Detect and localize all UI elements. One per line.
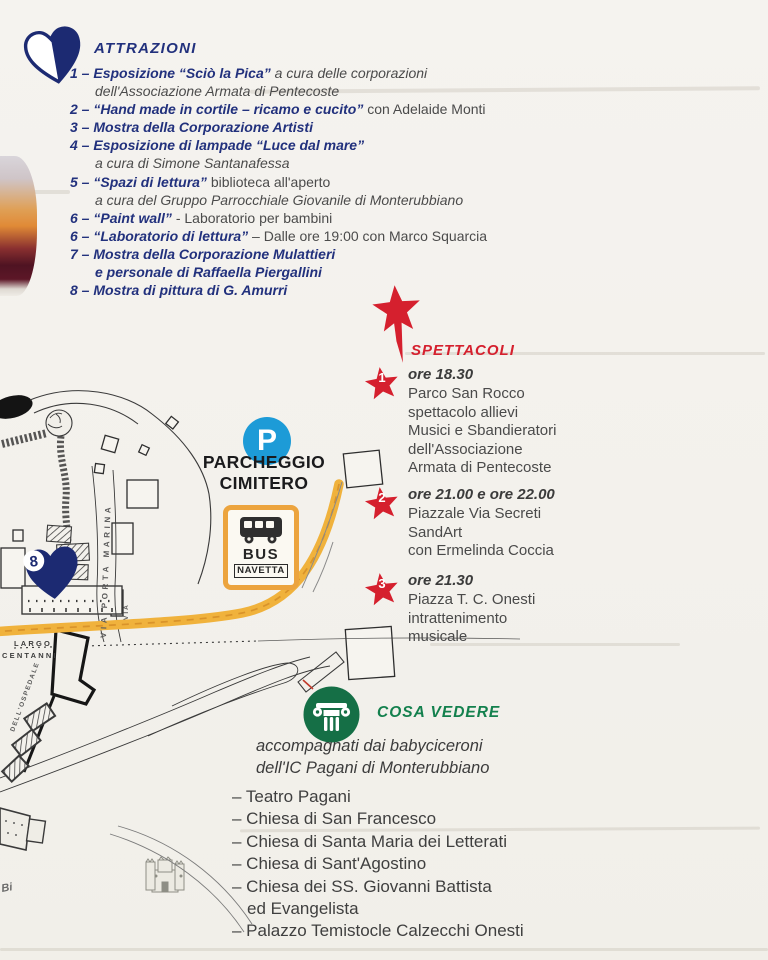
cosa-vedere-title: COSA VEDERE	[377, 704, 500, 722]
bus-sign-line2: NAVETTA	[234, 564, 288, 578]
star-marker-icon: 1	[364, 366, 400, 402]
map-pin-8: 8	[20, 541, 84, 605]
attraction-row: 2 – “Hand made in cortile – ricamo e cuc…	[70, 100, 590, 118]
map-label-largo: LARGO	[14, 639, 52, 648]
attraction-row: a cura del Gruppo Parrocchiale Giovanile…	[70, 191, 590, 209]
show-time: ore 18.30	[408, 366, 556, 383]
event-poster: ATTRAZIONI 1 – Esposizione “Sciò la Pica…	[0, 0, 768, 960]
show-item: 3 ore 21.30 Piazza T. C. Onesti intratte…	[364, 572, 535, 647]
pin-number: 8	[29, 553, 39, 571]
star-marker-icon: 2	[364, 486, 400, 522]
bus-shuttle-sign: BUS NAVETTA	[223, 505, 299, 590]
bus-sign-line1: BUS	[243, 547, 279, 562]
map-label-bi: Bi	[0, 881, 14, 895]
attraction-row: e personale di Raffaella Piergallini	[70, 263, 590, 281]
parking-label: PARCHEGGIO CIMITERO	[188, 452, 340, 494]
attraction-row: 3 – Mostra della Corporazione Artisti	[70, 118, 590, 136]
spettacoli-title: SPETTACOLI	[411, 342, 515, 359]
attraction-row: 6 – “Paint wall” - Laboratorio per bambi…	[70, 209, 590, 227]
wine-glass-photo	[0, 156, 37, 296]
attraction-row: dell'Associazione Armata di Pentecoste	[70, 82, 590, 100]
attractions-list: 1 – Esposizione “Sciò la Pica” a cura de…	[70, 64, 590, 299]
show-description: Piazza T. C. Onesti intrattenimento musi…	[408, 591, 535, 647]
place-item: – Chiesa di San Francesco	[232, 808, 524, 830]
attraction-row: 8 – Mostra di pittura di G. Amurri	[70, 281, 590, 299]
attraction-row: 5 – “Spazi di lettura” biblioteca all'ap…	[70, 173, 590, 191]
show-description: Parco San Rocco spettacolo allievi Music…	[408, 385, 556, 478]
bus-icon	[236, 513, 286, 547]
show-time: ore 21.00 e ore 22.00	[408, 486, 555, 503]
places-list: – Teatro Pagani – Chiesa di San Francesc…	[232, 786, 524, 943]
place-item: – Chiesa dei SS. Giovanni Battista	[232, 876, 524, 898]
star-marker-icon: 3	[364, 572, 400, 608]
attraction-row: 6 – “Laboratorio di lettura” – Dalle ore…	[70, 227, 590, 245]
map-label-via-porta-marina: VIA PORTA MARINA	[99, 504, 113, 638]
place-item: – Teatro Pagani	[232, 786, 524, 808]
place-item: – Palazzo Temistocle Calzecchi Onesti	[232, 920, 524, 942]
cosa-vedere-intro: accompagnati dai babyciceroni dell'IC Pa…	[256, 736, 489, 779]
attraction-row: 4 – Esposizione di lampade “Luce dal mar…	[70, 136, 590, 154]
place-item-continuation: ed Evangelista	[232, 898, 524, 920]
attraction-row: 1 – Esposizione “Sciò la Pica” a cura de…	[70, 64, 590, 82]
show-description: Piazzale Via Secreti SandArt con Ermelin…	[408, 505, 555, 561]
attraction-row: 7 – Mostra della Corporazione Mulattieri	[70, 245, 590, 263]
show-item: 2 ore 21.00 e ore 22.00 Piazzale Via Sec…	[364, 486, 555, 561]
show-item: 1 ore 18.30 Parco San Rocco spettacolo a…	[364, 366, 556, 478]
attractions-title: ATTRAZIONI	[94, 40, 197, 57]
map-label-via: VIA	[123, 603, 130, 620]
attraction-row: a cura di Simone Santanafessa	[70, 154, 590, 172]
column-icon	[303, 686, 360, 743]
place-item: – Chiesa di Santa Maria dei Letterati	[232, 831, 524, 853]
show-time: ore 21.30	[408, 572, 535, 589]
place-item: – Chiesa di Sant'Agostino	[232, 853, 524, 875]
map-label-centanni: CENTANNI	[2, 651, 58, 660]
